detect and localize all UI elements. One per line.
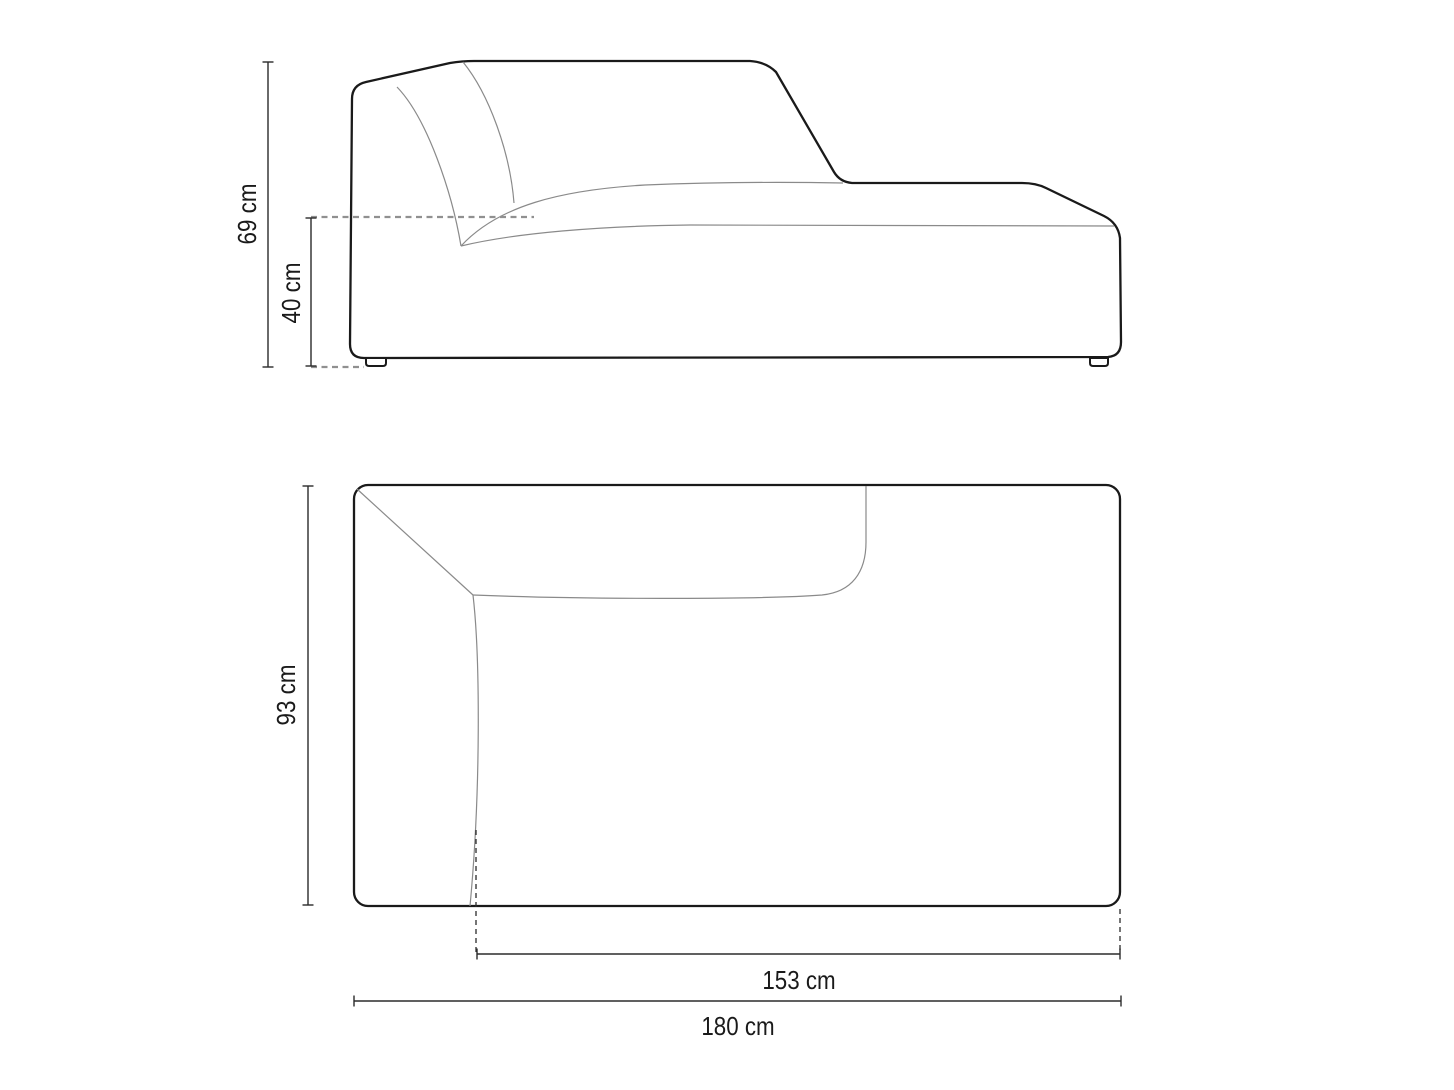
side-view <box>263 61 1122 367</box>
dimension-label-total-height: 69 cm <box>234 184 260 245</box>
dimension-label-total-width: 180 cm <box>701 1013 774 1039</box>
dimension-line-total-width <box>354 996 1121 1007</box>
dimension-label-depth: 93 cm <box>273 665 299 726</box>
top-view <box>303 485 1122 1007</box>
side-view-left-foot <box>366 358 386 366</box>
top-view-outline <box>354 485 1120 906</box>
diagram-canvas: 69 cm 40 cm 93 cm 153 cm 180 cm <box>0 0 1454 1090</box>
dimension-line-depth <box>303 486 314 905</box>
dimension-label-seat-width: 153 cm <box>762 967 835 993</box>
side-view-right-foot <box>1090 358 1108 366</box>
dimension-line-seat-height <box>306 218 317 366</box>
side-view-outline <box>350 61 1121 358</box>
dimension-line-total-height <box>263 62 274 367</box>
dimension-drawing-svg <box>0 0 1454 1090</box>
dimension-label-seat-height: 40 cm <box>278 263 304 324</box>
dimension-line-seat-width <box>477 949 1120 960</box>
